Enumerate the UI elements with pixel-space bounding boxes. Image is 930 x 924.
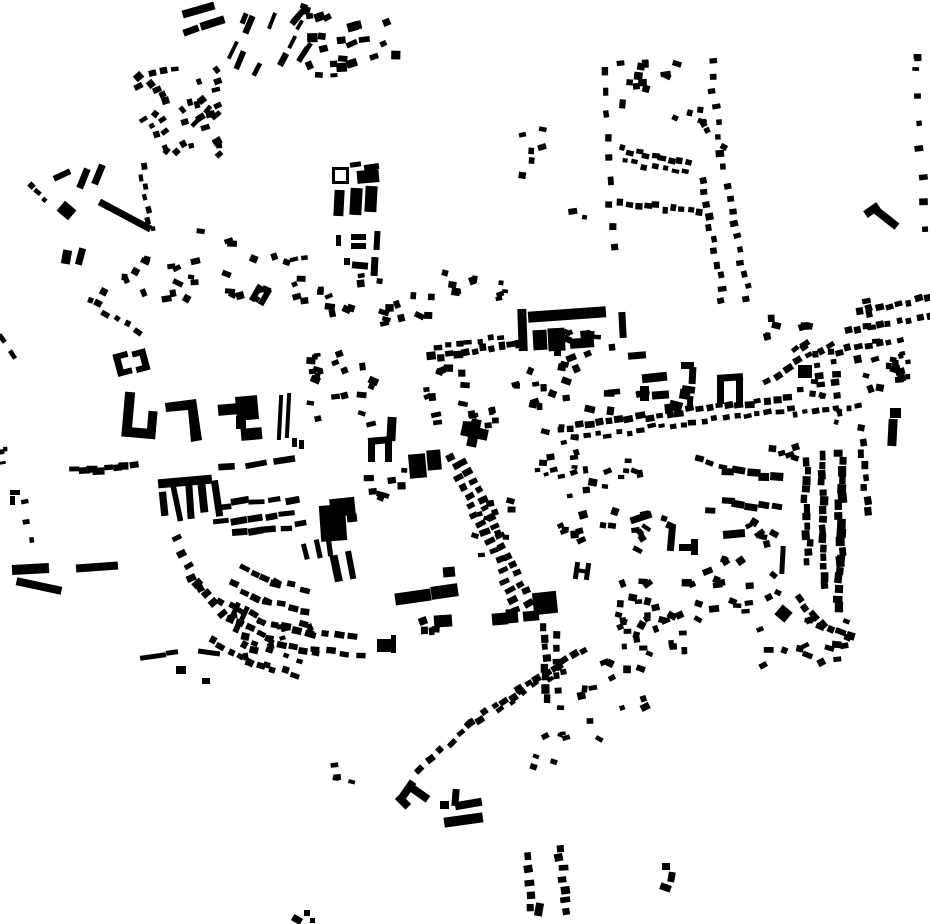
building [820, 451, 826, 461]
building [602, 67, 608, 75]
building [846, 405, 851, 411]
building [705, 224, 712, 232]
building [129, 461, 139, 468]
building [820, 563, 827, 569]
building [104, 464, 113, 470]
building [836, 537, 845, 546]
building [337, 36, 346, 44]
building [608, 344, 615, 351]
building [463, 340, 472, 345]
building [581, 685, 587, 693]
building [502, 289, 508, 293]
building [805, 467, 811, 475]
building [503, 535, 509, 540]
building [754, 411, 760, 416]
building [553, 645, 560, 652]
building [541, 664, 548, 673]
building [623, 468, 630, 473]
building [299, 440, 304, 449]
building [202, 678, 210, 684]
building [560, 668, 567, 675]
building [352, 261, 369, 269]
building [705, 212, 714, 221]
building [460, 382, 470, 388]
building [424, 312, 432, 319]
building [835, 585, 844, 593]
building [710, 247, 717, 254]
building [426, 351, 436, 360]
building [708, 88, 716, 94]
building [356, 169, 379, 184]
building [387, 477, 396, 484]
building [3, 447, 7, 452]
building [236, 416, 246, 429]
building [719, 579, 726, 586]
building [679, 630, 687, 635]
building [741, 609, 750, 614]
building [10, 490, 20, 495]
building [241, 427, 263, 441]
building [839, 476, 845, 484]
building [914, 145, 923, 152]
building [391, 635, 396, 653]
building [562, 527, 569, 533]
building [860, 484, 867, 491]
building [839, 547, 847, 556]
building [443, 566, 456, 577]
building [624, 629, 632, 634]
building [709, 605, 720, 613]
building [758, 473, 769, 481]
building [622, 643, 627, 649]
building [468, 410, 476, 418]
building [159, 67, 168, 75]
building [619, 99, 626, 109]
building [637, 62, 646, 70]
building [857, 424, 865, 432]
building [557, 845, 565, 853]
building [336, 235, 341, 246]
building [821, 581, 829, 589]
building [326, 647, 336, 655]
building [567, 426, 574, 433]
building [292, 438, 297, 447]
building [297, 276, 306, 282]
building [705, 507, 715, 514]
building [809, 390, 816, 397]
building [715, 403, 723, 409]
building [839, 457, 846, 465]
building [814, 362, 821, 368]
building [603, 88, 608, 96]
building [681, 647, 687, 654]
building [715, 150, 724, 158]
building [605, 201, 612, 207]
building [571, 465, 577, 469]
building [821, 572, 829, 582]
building [445, 342, 451, 348]
building [678, 206, 685, 212]
building [838, 466, 846, 477]
building [833, 656, 842, 662]
building [670, 204, 677, 212]
building [830, 379, 839, 386]
building [488, 345, 495, 352]
building [651, 201, 659, 208]
building [729, 208, 737, 214]
building [489, 406, 496, 414]
building [118, 462, 128, 470]
building [408, 453, 427, 478]
building [535, 468, 541, 473]
building [822, 407, 829, 413]
building [768, 314, 775, 322]
building [614, 415, 624, 423]
building [92, 467, 104, 475]
building [330, 60, 338, 67]
building [541, 635, 549, 643]
building [801, 530, 810, 540]
building [856, 307, 864, 315]
building [919, 174, 928, 180]
building [527, 904, 534, 911]
building [916, 120, 922, 126]
building [812, 351, 818, 358]
building [539, 460, 547, 467]
building [679, 389, 691, 400]
building [830, 359, 836, 365]
building [609, 223, 616, 230]
map-canvas [0, 0, 930, 924]
building [717, 378, 724, 404]
building [627, 431, 633, 437]
building [797, 387, 804, 393]
building [544, 694, 551, 703]
building [315, 72, 323, 78]
building [819, 489, 826, 496]
building [557, 705, 564, 710]
building [652, 390, 670, 399]
building [804, 504, 810, 513]
building [736, 378, 743, 404]
building [836, 529, 846, 538]
building [364, 186, 377, 213]
building [558, 876, 567, 883]
building [701, 119, 707, 126]
building [524, 880, 534, 887]
building [368, 488, 377, 495]
building [689, 367, 697, 384]
building [663, 165, 669, 171]
building [553, 631, 560, 639]
building [727, 196, 734, 203]
building [376, 278, 383, 284]
building [912, 67, 919, 71]
building [820, 553, 826, 561]
building [477, 339, 483, 345]
building [368, 441, 375, 462]
building [742, 296, 750, 303]
building [636, 427, 645, 433]
building [359, 362, 366, 370]
building [356, 279, 364, 287]
building [12, 563, 49, 575]
building [262, 525, 276, 533]
building [864, 343, 873, 350]
building [540, 384, 547, 392]
building [792, 411, 797, 417]
building [188, 274, 195, 279]
building [391, 51, 400, 60]
building [336, 63, 347, 73]
building [713, 262, 720, 270]
building [611, 244, 619, 251]
building [863, 474, 869, 481]
building [605, 154, 612, 160]
building [347, 513, 358, 522]
building [625, 458, 632, 463]
building [364, 475, 374, 481]
building [603, 110, 609, 118]
building [349, 188, 362, 216]
building [864, 496, 872, 505]
building [351, 243, 366, 249]
building [433, 345, 442, 351]
building [875, 384, 884, 392]
building [835, 499, 842, 510]
building [486, 500, 495, 508]
building [715, 134, 721, 140]
building [599, 522, 606, 529]
building [892, 360, 899, 367]
building [560, 731, 566, 735]
building [764, 647, 774, 653]
building [605, 417, 612, 424]
building [300, 608, 310, 615]
building [498, 280, 504, 285]
building [775, 409, 784, 414]
building [560, 886, 570, 895]
building [554, 687, 561, 693]
building [905, 300, 911, 307]
building [518, 172, 526, 180]
building [344, 258, 350, 265]
building [802, 513, 810, 520]
building [922, 226, 928, 232]
building [582, 215, 588, 220]
building [798, 365, 812, 378]
building [645, 414, 655, 422]
building [820, 496, 829, 505]
building [448, 281, 457, 289]
building [232, 528, 248, 536]
building [837, 519, 846, 530]
building [744, 600, 753, 606]
building [143, 183, 149, 190]
building [267, 643, 275, 650]
building [487, 334, 494, 341]
building [374, 231, 381, 250]
building [819, 524, 826, 534]
building [864, 507, 872, 516]
building [401, 468, 407, 473]
building [833, 596, 843, 603]
building [668, 640, 674, 648]
building [562, 394, 570, 401]
building [528, 148, 534, 155]
building [745, 401, 755, 408]
building [710, 74, 717, 80]
building [585, 331, 595, 338]
building [608, 176, 614, 185]
building [478, 553, 485, 558]
building [440, 801, 449, 809]
building [626, 79, 633, 86]
building [541, 684, 549, 694]
building [733, 603, 742, 608]
building [702, 201, 710, 208]
building [837, 484, 846, 494]
building [582, 486, 590, 493]
building [301, 255, 308, 260]
building [914, 93, 921, 98]
building [347, 633, 358, 640]
building [764, 398, 771, 406]
building [804, 548, 812, 556]
building [695, 208, 703, 216]
building [437, 354, 445, 362]
building [595, 430, 601, 435]
building [837, 555, 846, 563]
building [710, 415, 717, 421]
building [331, 393, 340, 399]
building [568, 208, 578, 215]
building [638, 79, 647, 87]
building [608, 522, 617, 529]
building [307, 33, 318, 42]
building [553, 672, 560, 679]
building [616, 429, 622, 434]
building [644, 202, 652, 209]
building [834, 450, 843, 457]
building [834, 572, 843, 583]
building [171, 66, 179, 71]
building [281, 526, 292, 532]
building [529, 157, 535, 164]
building [421, 626, 428, 634]
building [583, 466, 589, 474]
building [803, 457, 810, 467]
building [523, 864, 533, 873]
building [587, 718, 594, 724]
building [385, 304, 393, 312]
building [656, 413, 663, 419]
building [858, 449, 864, 458]
building [867, 324, 876, 330]
building [699, 177, 707, 185]
building [304, 910, 310, 916]
building [532, 330, 547, 351]
building [662, 207, 668, 214]
building [916, 314, 924, 322]
building [802, 486, 810, 493]
building [688, 420, 696, 426]
building [622, 158, 627, 163]
building [546, 453, 555, 461]
building [218, 403, 239, 416]
building [69, 466, 79, 471]
building [709, 58, 717, 64]
building [319, 504, 347, 542]
building [543, 654, 552, 662]
building [828, 349, 835, 355]
building [559, 424, 565, 429]
building [606, 406, 614, 415]
building [635, 203, 643, 210]
building [385, 441, 392, 462]
building [619, 617, 626, 626]
building [428, 393, 436, 401]
building [872, 338, 881, 344]
building [618, 312, 626, 338]
building [820, 545, 827, 553]
building [890, 408, 901, 418]
building [834, 512, 842, 520]
building-footprint-map [0, 0, 930, 924]
building [492, 417, 499, 423]
building [697, 106, 704, 113]
building [523, 610, 540, 621]
building [734, 413, 741, 419]
building [386, 417, 396, 441]
building [832, 371, 841, 378]
building [497, 335, 504, 340]
building [602, 484, 609, 489]
building [351, 234, 366, 240]
building [190, 279, 198, 285]
building [570, 337, 595, 349]
building [773, 396, 782, 404]
building [675, 157, 682, 164]
building [814, 372, 823, 380]
building [745, 582, 753, 589]
building [819, 462, 825, 469]
building [818, 470, 826, 480]
building [333, 190, 344, 216]
building [833, 392, 841, 399]
building [321, 630, 329, 637]
building [853, 326, 861, 334]
building [887, 419, 897, 446]
building [508, 507, 516, 513]
building [720, 163, 726, 169]
building [317, 289, 324, 295]
building [575, 420, 584, 428]
building [644, 612, 651, 618]
building [527, 891, 536, 899]
building [554, 853, 564, 862]
building [884, 321, 890, 327]
building [429, 627, 435, 635]
building [861, 461, 868, 469]
building [356, 653, 365, 659]
building [818, 533, 826, 543]
building [445, 350, 454, 357]
building [623, 665, 631, 673]
building [804, 558, 810, 565]
building [706, 404, 714, 412]
building [718, 271, 725, 278]
